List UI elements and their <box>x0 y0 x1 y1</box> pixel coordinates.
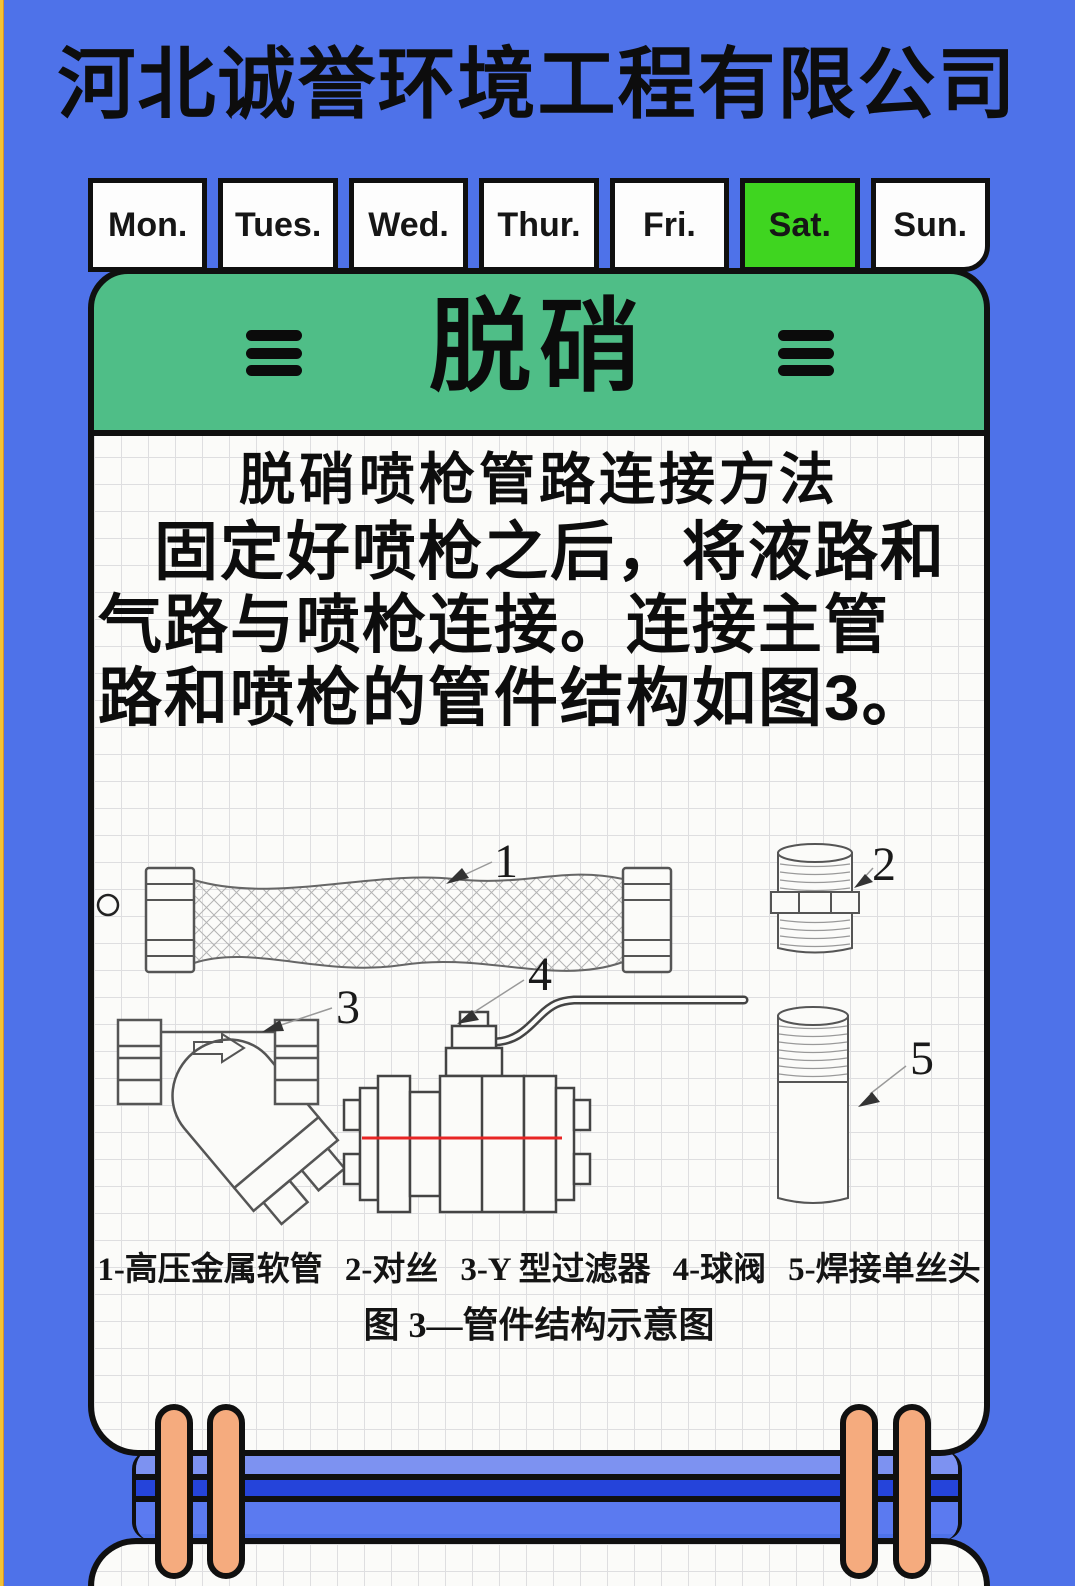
svg-text:5: 5 <box>910 1032 934 1085</box>
binder-ring <box>893 1404 931 1579</box>
margin-circle-mark <box>98 895 118 915</box>
tab-tues[interactable]: Tues. <box>218 178 337 272</box>
tab-thur[interactable]: Thur. <box>479 178 598 272</box>
svg-text:3: 3 <box>336 981 360 1034</box>
weekday-tabs: Mon. Tues. Wed. Thur. Fri. Sat. Sun. <box>88 178 990 272</box>
figure-caption: 图 3—管件结构示意图 <box>94 1296 984 1348</box>
notepad-title: 脱硝 <box>94 292 984 402</box>
svg-text:2: 2 <box>872 838 896 891</box>
binder-ring <box>840 1404 878 1579</box>
legend-item: 5-焊接单丝头 <box>788 1242 981 1290</box>
article-line: 路和喷枪的管件结构如图3。 <box>98 662 980 735</box>
binder-ring <box>155 1404 193 1579</box>
article-heading: 脱硝喷枪管路连接方法 <box>98 444 980 516</box>
tab-wed[interactable]: Wed. <box>349 178 468 272</box>
part-thread-head-drawing <box>778 1007 848 1203</box>
article-line: 气路与喷枪连接。连接主管 <box>98 589 980 662</box>
left-edge-stripe <box>0 0 4 1586</box>
legend-item: 3-Y 型过滤器 <box>460 1242 650 1290</box>
band-mid-blue <box>136 1502 958 1534</box>
binder-ring <box>207 1404 245 1579</box>
article-text: 脱硝喷枪管路连接方法 固定好喷枪之后，将液路和 气路与喷枪连接。连接主管 路和喷… <box>98 444 980 735</box>
part-hose-drawing <box>146 868 671 972</box>
legend-item: 1-高压金属软管 <box>97 1242 323 1290</box>
notepad-page: 脱硝喷枪管路连接方法 固定好喷枪之后，将液路和 气路与喷枪连接。连接主管 路和喷… <box>88 430 990 1456</box>
company-title: 河北诚誉环境工程有限公司 <box>0 22 1075 134</box>
svg-text:1: 1 <box>494 835 518 888</box>
notepad-header: 脱硝 <box>88 268 990 436</box>
tab-sun[interactable]: Sun. <box>871 178 990 272</box>
poster-canvas: 河北诚誉环境工程有限公司 Mon. Tues. Wed. Thur. Fri. … <box>0 0 1075 1586</box>
legend-item: 4-球阀 <box>673 1242 767 1290</box>
band-dark-blue <box>136 1480 958 1502</box>
figure-legend: 1-高压金属软管 2-对丝 3-Y 型过滤器 4-球阀 5-焊接单丝头 <box>94 1242 984 1290</box>
binder-bands <box>132 1451 962 1540</box>
part-valve-drawing <box>344 1000 744 1212</box>
part-label-2: 2 <box>854 838 896 891</box>
hamburger-icon[interactable] <box>778 330 834 376</box>
part-nipple-drawing <box>771 844 859 953</box>
tab-mon[interactable]: Mon. <box>88 178 207 272</box>
part-strainer-drawing <box>118 1018 356 1233</box>
legend-item: 2-对丝 <box>345 1242 439 1290</box>
article-line: 固定好喷枪之后，将液路和 <box>98 516 980 589</box>
part-label-5: 5 <box>858 1032 934 1107</box>
tab-sat[interactable]: Sat. <box>740 178 859 272</box>
svg-text:4: 4 <box>528 948 552 1001</box>
tab-fri[interactable]: Fri. <box>610 178 729 272</box>
